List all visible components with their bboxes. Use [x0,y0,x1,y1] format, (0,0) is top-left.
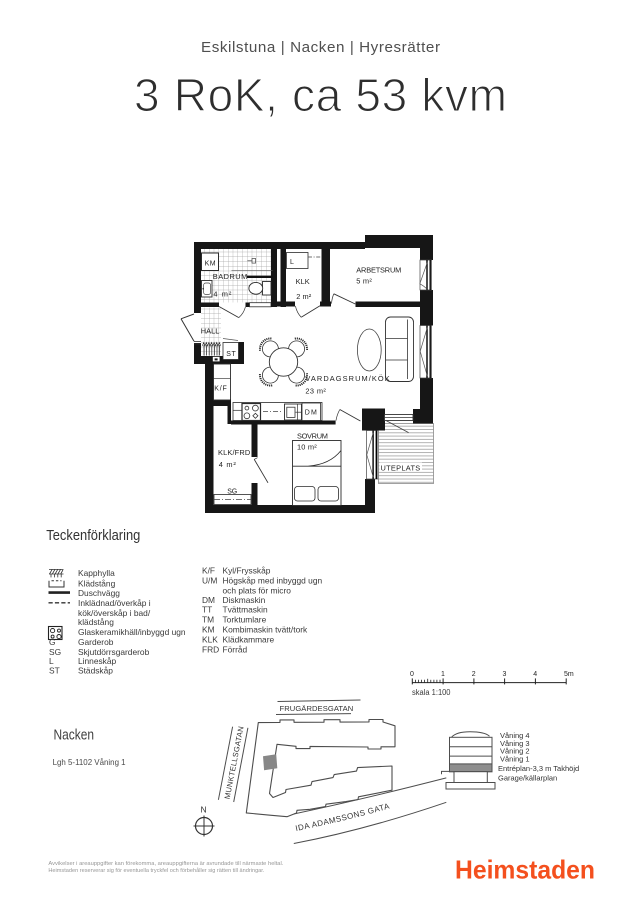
svg-text:Nacken: Nacken [54,728,95,744]
svg-text:FRD: FRD [202,644,219,654]
svg-text:FRUGÄRDESGATAN: FRUGÄRDESGATAN [280,704,354,713]
svg-text:U/M: U/M [202,576,217,586]
svg-text:Heimstaden: Heimstaden [455,855,595,885]
svg-text:Klädkammare: Klädkammare [223,634,275,644]
svg-text:KLK: KLK [296,277,310,286]
svg-text:Glaskeramikhäll/inbyggd ugn: Glaskeramikhäll/inbyggd ugn [78,627,186,637]
svg-text:3 RoK, ca 53 kvm: 3 RoK, ca 53 kvm [134,69,507,121]
svg-text:HALL: HALL [201,326,220,335]
svg-text:Kapphylla: Kapphylla [78,568,115,578]
svg-text:Högskåp med inbyggd ugn: Högskåp med inbyggd ugn [223,576,323,586]
svg-text:KLK: KLK [202,634,218,644]
svg-text:4 m²: 4 m² [213,290,232,299]
svg-text:Garage/källarplan: Garage/källarplan [498,773,557,782]
svg-text:Städskåp: Städskåp [78,666,113,676]
svg-text:DM: DM [305,409,317,416]
svg-text:BADRUM: BADRUM [213,272,248,281]
svg-text:Torktumlare: Torktumlare [223,614,267,624]
svg-text:Avvikelser i areauppgifter kan: Avvikelser i areauppgifter kan förekomma… [48,861,283,867]
svg-text:Heimstaden reserverar sig för: Heimstaden reserverar sig för eventuella… [48,867,264,874]
svg-text:G: G [49,637,56,647]
svg-text:Tvättmaskin: Tvättmaskin [223,604,268,614]
svg-text:K/F: K/F [214,386,227,393]
svg-text:23 m²: 23 m² [305,387,326,396]
svg-text:KM: KM [202,624,215,634]
svg-text:ST: ST [49,666,60,676]
svg-text:2: 2 [472,671,476,678]
svg-text:Lgh 5-1102 Våning 1: Lgh 5-1102 Våning 1 [53,757,126,767]
svg-text:KM: KM [205,261,216,268]
svg-text:Eskilstuna | Nacken | Hyresrät: Eskilstuna | Nacken | Hyresrätter [201,39,440,56]
svg-text:Garderob: Garderob [78,637,114,647]
svg-text:N: N [201,805,207,815]
svg-text:Entréplan-3,3 m Takhöjd: Entréplan-3,3 m Takhöjd [498,764,579,773]
svg-text:SOVRUM: SOVRUM [297,432,328,441]
svg-text:VARDAGSRUM/KÖK: VARDAGSRUM/KÖK [305,374,389,383]
svg-text:UTEPLATS: UTEPLATS [381,463,421,472]
svg-text:DM: DM [202,595,215,605]
svg-text:Klädstång: Klädstång [78,578,116,588]
svg-text:Diskmaskin: Diskmaskin [223,595,266,605]
svg-text:SG: SG [227,489,237,496]
svg-text:2 m²: 2 m² [296,292,312,301]
svg-text:Kyl/Frysskåp: Kyl/Frysskåp [223,566,271,576]
svg-text:TM: TM [202,614,214,624]
svg-text:Kombimaskin tvätt/tork: Kombimaskin tvätt/tork [223,624,309,634]
svg-text:L: L [290,259,294,266]
svg-text:4 m²: 4 m² [219,460,237,469]
svg-text:TT: TT [202,604,212,614]
svg-text:10 m²: 10 m² [297,443,317,452]
svg-text:4: 4 [533,671,537,678]
svg-text:Förråd: Förråd [223,644,248,654]
svg-text:5 m²: 5 m² [356,276,372,285]
svg-text:5m: 5m [564,671,574,678]
svg-text:Inklädnad/överkåp i: Inklädnad/överkåp i [78,598,151,608]
svg-text:ST: ST [226,351,236,358]
svg-text:3: 3 [503,671,507,678]
svg-text:skala 1:100: skala 1:100 [412,688,451,697]
svg-text:0: 0 [410,671,414,678]
svg-text:Våning 1: Våning 1 [500,754,530,763]
svg-text:Teckenförklaring: Teckenförklaring [46,527,140,544]
svg-text:ARBETSRUM: ARBETSRUM [356,266,401,275]
svg-text:K/F: K/F [202,566,215,576]
svg-text:KLK/FRD: KLK/FRD [218,448,250,457]
svg-text:klädstång: klädstång [78,617,114,627]
svg-text:1: 1 [441,671,445,678]
svg-text:Duschvägg: Duschvägg [78,588,120,598]
